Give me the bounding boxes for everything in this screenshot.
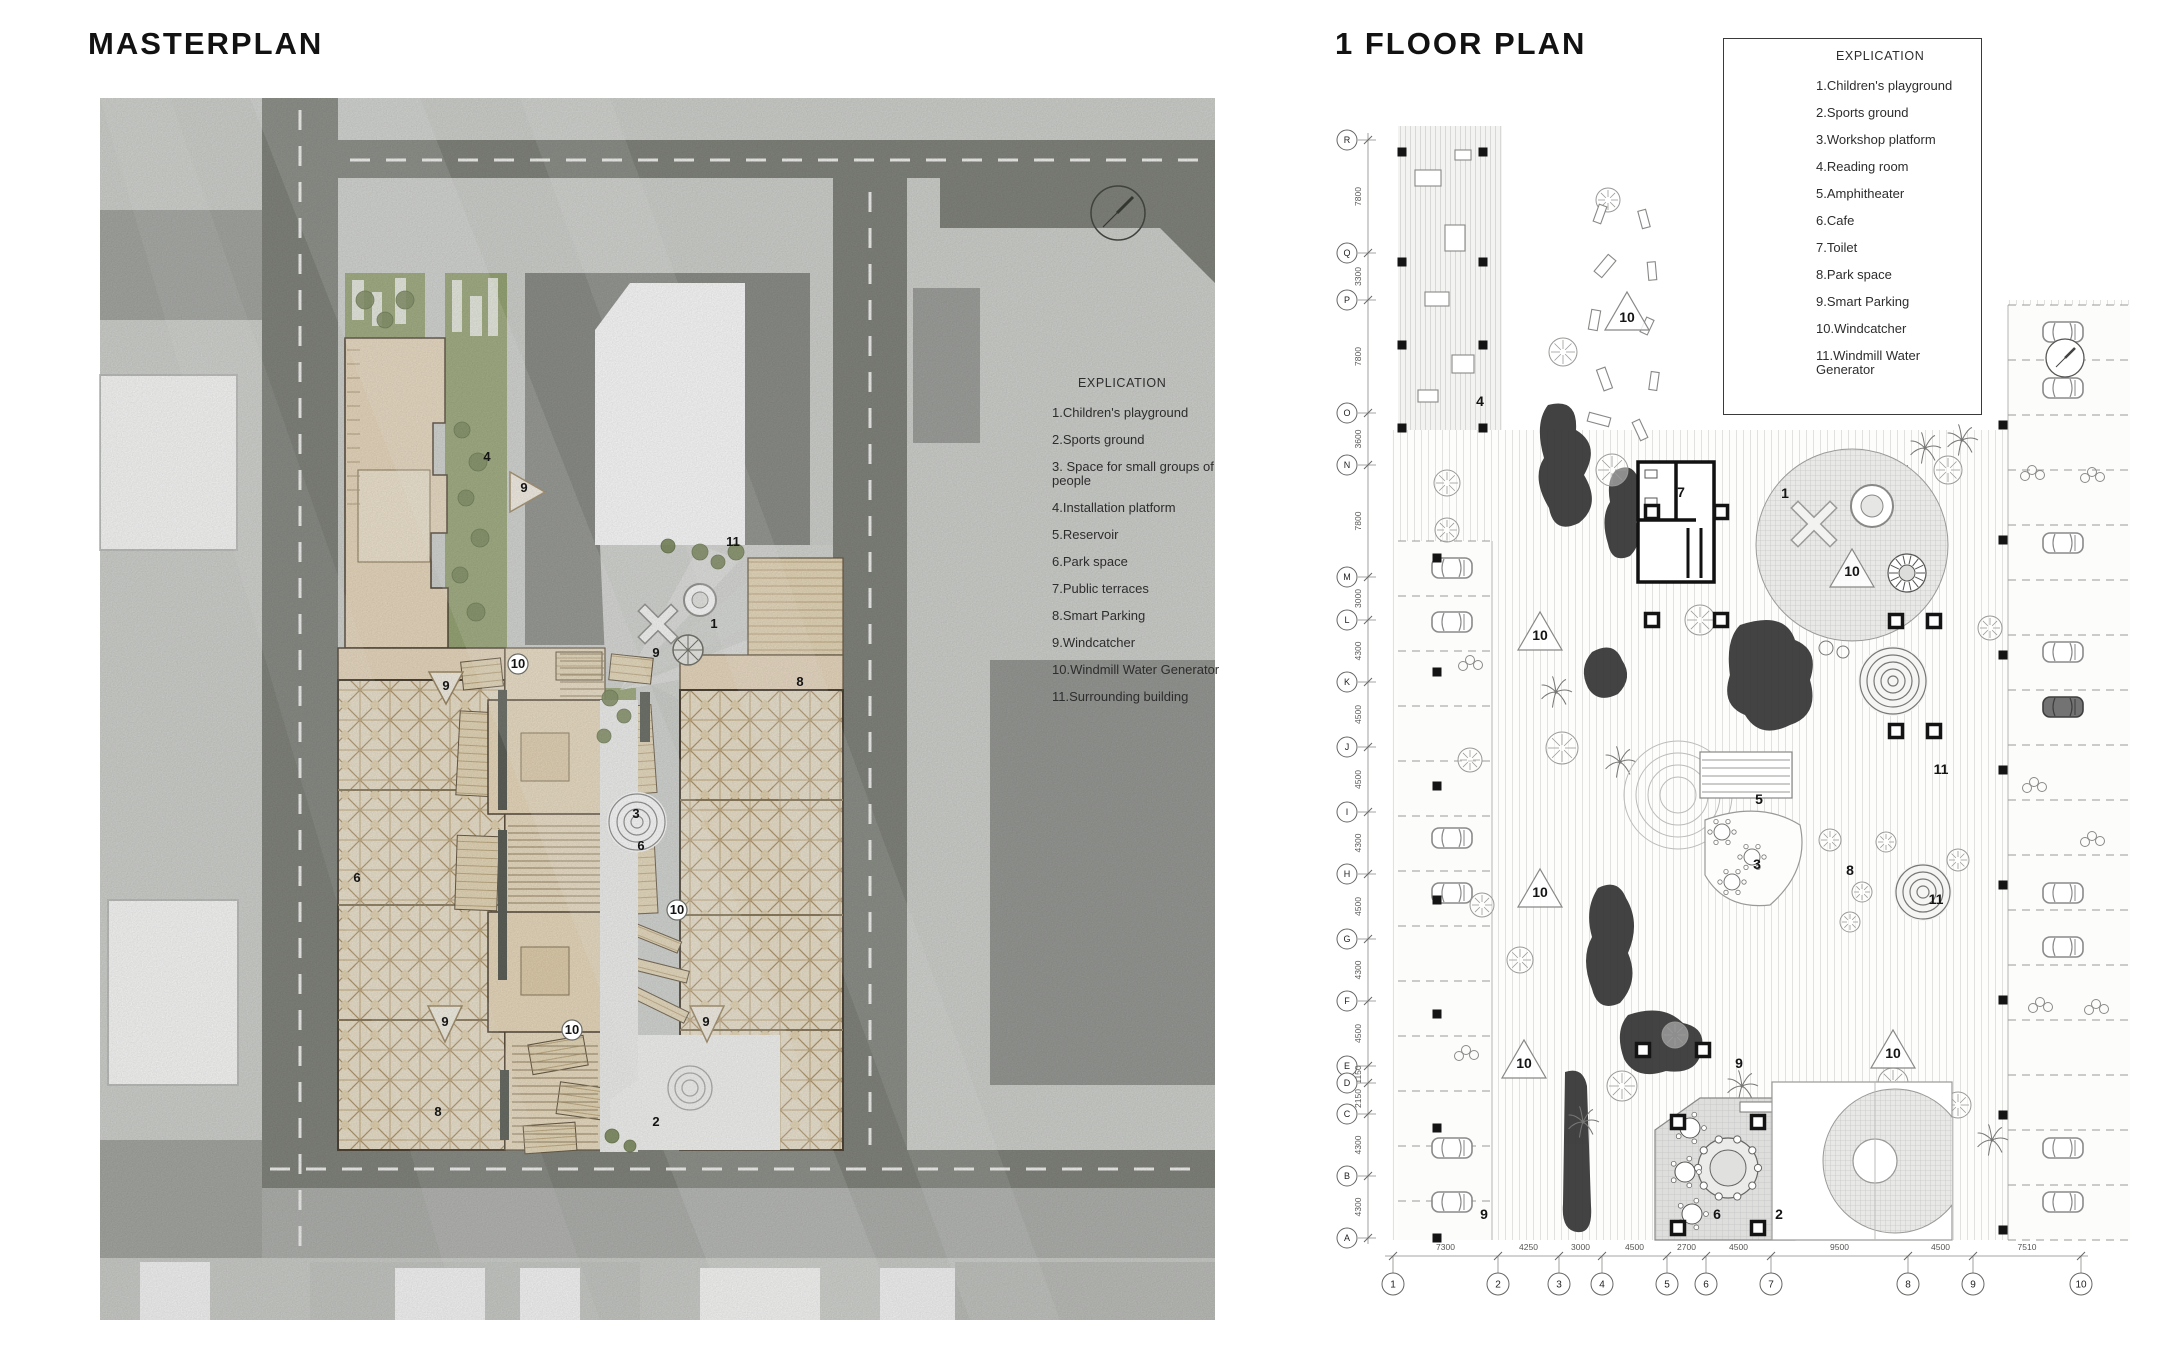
plan-label: 10 (1516, 1055, 1532, 1071)
car-icon (2043, 697, 2083, 717)
floorplan-compass-icon (2046, 339, 2084, 377)
plan-label: 9 (1480, 1206, 1488, 1222)
floorplan-axis-left: R7800Q3300P7800O3600N7800M3000L4300K4500… (1337, 130, 1376, 1248)
plan-label: 11 (1929, 891, 1944, 907)
svg-text:3600: 3600 (1353, 429, 1363, 448)
svg-text:8: 8 (1905, 1280, 1911, 1291)
svg-text:5: 5 (1664, 1280, 1670, 1291)
plan-label: 11 (1934, 761, 1949, 777)
explication-item: 10.Windcatcher (1816, 322, 1969, 336)
car-icon (2043, 1192, 2083, 1212)
tree-icon (1685, 605, 1715, 635)
svg-text:K: K (1344, 677, 1350, 687)
tree-icon (1852, 882, 1872, 902)
svg-text:1: 1 (1390, 1280, 1396, 1291)
svg-text:4500: 4500 (1353, 770, 1363, 789)
svg-text:2: 2 (1495, 1280, 1501, 1291)
tree-icon (1596, 454, 1628, 486)
svg-text:L: L (1344, 615, 1349, 625)
tree-icon (1819, 829, 1841, 851)
car-icon (2043, 1138, 2083, 1158)
explication-item: 1.Children's playground (1816, 79, 1969, 93)
explication-item: 6.Cafe (1816, 214, 1969, 228)
explication-item: 9.Windcatcher (1052, 636, 1222, 650)
svg-text:7510: 7510 (2018, 1242, 2037, 1252)
svg-text:3000: 3000 (1353, 589, 1363, 608)
explication-heading: EXPLICATION (1078, 376, 1222, 390)
svg-text:F: F (1344, 996, 1350, 1006)
svg-text:C: C (1344, 1109, 1351, 1119)
plan-label: 10 (1885, 1045, 1901, 1061)
car-icon (2043, 378, 2083, 398)
explication-item: 9.Smart Parking (1816, 295, 1969, 309)
car-icon (2043, 533, 2083, 553)
svg-text:4300: 4300 (1353, 960, 1363, 979)
svg-text:7800: 7800 (1353, 347, 1363, 366)
svg-text:J: J (1345, 742, 1350, 752)
explication-item: 7.Public terraces (1052, 582, 1222, 596)
svg-text:4300: 4300 (1353, 1135, 1363, 1154)
plan-label: 10 (1532, 884, 1548, 900)
svg-text:R: R (1344, 135, 1351, 145)
tree-icon (1662, 1022, 1688, 1048)
plan-label: 9 (1735, 1055, 1743, 1071)
svg-text:A: A (1344, 1233, 1350, 1243)
svg-text:7: 7 (1768, 1280, 1774, 1291)
explication-item: 3.Workshop platform (1816, 133, 1969, 147)
explication-item: 4.Reading room (1816, 160, 1969, 174)
svg-text:B: B (1344, 1171, 1350, 1181)
explication-item: 5.Reservoir (1052, 528, 1222, 542)
svg-text:M: M (1343, 572, 1351, 582)
explication-item: 5.Amphitheater (1816, 187, 1969, 201)
plan-label: 10 (1619, 309, 1635, 325)
explication-heading: EXPLICATION (1836, 49, 1969, 63)
svg-text:10: 10 (2075, 1280, 2087, 1291)
floorplan-explication: EXPLICATION 1.Children's playground2.Spo… (1723, 38, 1982, 415)
page: MASTERPLAN 1 FLOOR PLAN (0, 0, 2160, 1350)
tree-icon (1435, 518, 1459, 542)
svg-text:6: 6 (1703, 1280, 1709, 1291)
svg-text:4500: 4500 (1353, 1024, 1363, 1043)
explication-item: 3. Space for small groups of people (1052, 460, 1222, 488)
tree-icon (1458, 748, 1482, 772)
svg-text:4500: 4500 (1729, 1242, 1748, 1252)
explication-item: 1.Children's playground (1052, 406, 1222, 420)
floorplan-axis-bottom: 1730024250330004450052700645007950084500… (1382, 1242, 2092, 1295)
svg-text:9: 9 (1970, 1280, 1976, 1291)
plan-label: 5 (1755, 791, 1763, 807)
car-icon (2043, 642, 2083, 662)
car-icon (1432, 828, 1472, 848)
svg-text:2150: 2150 (1353, 1089, 1363, 1108)
svg-text:N: N (1344, 460, 1351, 470)
car-icon (1432, 612, 1472, 632)
plan-label: 2 (1775, 1206, 1783, 1222)
tree-icon (1507, 947, 1533, 973)
plan-label: 8 (1846, 862, 1854, 878)
plan-label: 7 (1677, 484, 1685, 500)
svg-text:G: G (1343, 934, 1350, 944)
svg-text:4250: 4250 (1519, 1242, 1538, 1252)
explication-item: 6.Park space (1052, 555, 1222, 569)
explication-item: 7.Toilet (1816, 241, 1969, 255)
svg-text:H: H (1344, 869, 1351, 879)
explication-item: 8.Smart Parking (1052, 609, 1222, 623)
plan-label: 6 (1713, 1206, 1721, 1222)
svg-text:4500: 4500 (1625, 1242, 1644, 1252)
svg-text:4: 4 (1599, 1280, 1605, 1291)
explication-item: 2.Sports ground (1816, 106, 1969, 120)
explication-item: 11.Windmill Water Generator (1816, 349, 1969, 377)
car-icon (1432, 1192, 1472, 1212)
floorplan-sports-ground (1772, 1082, 1967, 1240)
svg-text:3: 3 (1556, 1280, 1562, 1291)
floorplan-toilet (1638, 462, 1714, 582)
svg-text:7800: 7800 (1353, 187, 1363, 206)
explication-item: 2.Sports ground (1052, 433, 1222, 447)
tree-icon (1434, 470, 1460, 496)
masterplan-explication: EXPLICATION 1.Children's playground2.Spo… (1052, 376, 1222, 717)
tree-icon (1607, 1071, 1637, 1101)
car-icon (2043, 937, 2083, 957)
plan-label: 10 (1844, 563, 1860, 579)
tree-icon (1934, 456, 1962, 484)
tree-icon (1947, 849, 1969, 871)
tree-icon (1470, 893, 1494, 917)
svg-text:3000: 3000 (1571, 1242, 1590, 1252)
explication-item: 10.Windmill Water Generator (1052, 663, 1222, 677)
svg-text:4500: 4500 (1353, 705, 1363, 724)
plan-label: 10 (1532, 627, 1548, 643)
svg-text:2700: 2700 (1677, 1242, 1696, 1252)
car-icon (2043, 883, 2083, 903)
svg-text:4300: 4300 (1353, 1197, 1363, 1216)
svg-text:3300: 3300 (1353, 267, 1363, 286)
explication-item: 4.Installation platform (1052, 501, 1222, 515)
car-icon (1432, 1138, 1472, 1158)
tree-icon (1840, 912, 1860, 932)
explication-item: 11.Surrounding building (1052, 690, 1222, 704)
plan-label: 3 (1753, 856, 1761, 872)
svg-text:4500: 4500 (1931, 1242, 1950, 1252)
tree-icon (1978, 616, 2002, 640)
svg-text:9500: 9500 (1830, 1242, 1849, 1252)
svg-text:Q: Q (1343, 248, 1350, 258)
svg-text:7300: 7300 (1436, 1242, 1455, 1252)
tree-icon (1549, 338, 1577, 366)
plan-label: 1 (1781, 485, 1789, 501)
svg-text:O: O (1343, 408, 1350, 418)
svg-text:E: E (1344, 1061, 1350, 1071)
explication-item: 8.Park space (1816, 268, 1969, 282)
svg-text:4500: 4500 (1353, 897, 1363, 916)
tree-icon (1546, 732, 1578, 764)
svg-text:D: D (1344, 1078, 1351, 1088)
tree-icon (1876, 832, 1896, 852)
svg-text:P: P (1344, 295, 1350, 305)
svg-text:I: I (1346, 807, 1349, 817)
plan-label: 4 (1476, 393, 1484, 409)
svg-text:7800: 7800 (1353, 511, 1363, 530)
svg-text:4300: 4300 (1353, 641, 1363, 660)
svg-text:4300: 4300 (1353, 833, 1363, 852)
